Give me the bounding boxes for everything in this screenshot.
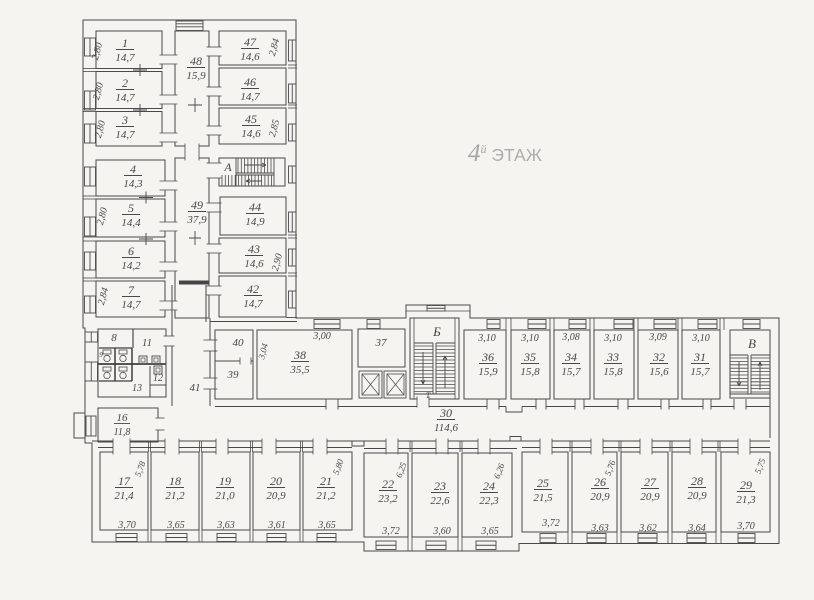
svg-text:41: 41 (190, 382, 201, 394)
svg-text:3,72: 3,72 (381, 526, 400, 537)
svg-text:21,3: 21,3 (736, 494, 756, 506)
svg-text:3,10: 3,10 (477, 333, 496, 344)
svg-text:3,65: 3,65 (166, 520, 185, 531)
svg-text:3,63: 3,63 (216, 520, 235, 531)
svg-text:3,62: 3,62 (638, 523, 657, 534)
svg-text:36: 36 (481, 350, 494, 364)
svg-text:4й ЭТАЖ: 4й ЭТАЖ (468, 140, 542, 167)
svg-text:14,6: 14,6 (244, 258, 264, 270)
svg-text:14,6: 14,6 (240, 51, 260, 63)
svg-text:40: 40 (233, 337, 245, 349)
svg-text:3,08: 3,08 (561, 332, 580, 343)
svg-text:39: 39 (227, 369, 240, 381)
svg-text:15,6: 15,6 (649, 366, 669, 378)
svg-text:28: 28 (691, 474, 703, 488)
svg-text:20: 20 (270, 474, 282, 488)
svg-text:16: 16 (117, 412, 129, 424)
svg-text:43: 43 (248, 242, 260, 256)
svg-text:9: 9 (99, 351, 103, 359)
svg-text:18: 18 (169, 474, 181, 488)
svg-text:14,7: 14,7 (115, 92, 135, 104)
svg-text:37,9: 37,9 (186, 214, 207, 226)
svg-text:3,09: 3,09 (648, 332, 667, 343)
svg-text:21,0: 21,0 (215, 490, 235, 502)
svg-text:29: 29 (740, 478, 752, 492)
svg-text:21,4: 21,4 (114, 490, 134, 502)
svg-text:А: А (223, 160, 232, 174)
svg-text:22,6: 22,6 (430, 495, 450, 507)
svg-text:15,8: 15,8 (520, 366, 540, 378)
svg-text:3,72: 3,72 (541, 518, 560, 529)
svg-text:3,65: 3,65 (317, 520, 336, 531)
svg-text:48: 48 (190, 54, 202, 68)
svg-text:45: 45 (245, 112, 257, 126)
svg-text:3,60: 3,60 (432, 526, 451, 537)
svg-text:38: 38 (293, 348, 306, 362)
svg-text:3,61: 3,61 (267, 520, 286, 531)
svg-text:34: 34 (564, 350, 577, 364)
svg-text:6: 6 (128, 244, 134, 258)
svg-text:21,2: 21,2 (316, 490, 336, 502)
svg-text:3,70: 3,70 (117, 520, 136, 531)
svg-text:В: В (748, 336, 756, 351)
svg-text:11: 11 (142, 337, 152, 349)
svg-text:5: 5 (128, 201, 134, 215)
svg-text:8: 8 (111, 332, 117, 344)
svg-text:15,9: 15,9 (478, 366, 498, 378)
svg-text:14,6: 14,6 (241, 128, 261, 140)
svg-text:3,10: 3,10 (520, 333, 539, 344)
svg-text:114,6: 114,6 (434, 422, 458, 434)
svg-text:20,9: 20,9 (590, 491, 610, 503)
svg-text:3,00: 3,00 (312, 331, 331, 342)
svg-text:44: 44 (249, 200, 261, 214)
svg-text:14,9: 14,9 (245, 216, 265, 228)
svg-text:3,10: 3,10 (603, 333, 622, 344)
svg-text:30: 30 (439, 406, 452, 420)
svg-text:1: 1 (122, 36, 128, 50)
svg-text:4: 4 (130, 162, 136, 176)
svg-text:31: 31 (693, 350, 706, 364)
svg-text:3,63: 3,63 (590, 523, 609, 534)
svg-text:37: 37 (375, 337, 388, 349)
svg-text:21,2: 21,2 (165, 490, 185, 502)
svg-text:11,8: 11,8 (114, 427, 131, 438)
svg-text:12: 12 (153, 373, 163, 384)
svg-text:49: 49 (191, 198, 203, 212)
svg-text:2: 2 (122, 76, 128, 90)
svg-text:14,7: 14,7 (240, 91, 260, 103)
svg-text:23: 23 (434, 479, 446, 493)
svg-text:25: 25 (537, 476, 549, 490)
svg-text:17: 17 (118, 474, 131, 488)
svg-text:22: 22 (382, 477, 394, 491)
svg-text:Б: Б (432, 324, 441, 339)
svg-text:3: 3 (121, 113, 128, 127)
svg-text:14,4: 14,4 (121, 217, 141, 229)
svg-text:15,7: 15,7 (561, 366, 581, 378)
svg-text:20,9: 20,9 (266, 490, 286, 502)
svg-text:3,65: 3,65 (480, 526, 499, 537)
svg-text:14,7: 14,7 (115, 52, 135, 64)
svg-text:15,9: 15,9 (186, 70, 206, 82)
svg-text:3,10: 3,10 (691, 333, 710, 344)
svg-text:35,5: 35,5 (289, 364, 310, 376)
svg-text:20,9: 20,9 (687, 490, 707, 502)
svg-text:42: 42 (247, 282, 259, 296)
svg-text:14,7: 14,7 (115, 129, 135, 141)
svg-text:7: 7 (128, 283, 135, 297)
svg-text:26: 26 (594, 475, 606, 489)
svg-text:15,8: 15,8 (603, 366, 623, 378)
svg-text:24: 24 (483, 479, 495, 493)
svg-text:22,3: 22,3 (479, 495, 499, 507)
svg-text:15,7: 15,7 (690, 366, 710, 378)
svg-text:14,2: 14,2 (121, 260, 141, 272)
svg-text:32: 32 (652, 350, 665, 364)
svg-text:21: 21 (320, 474, 332, 488)
svg-text:20,9: 20,9 (640, 491, 660, 503)
svg-text:14,7: 14,7 (121, 299, 141, 311)
svg-text:46: 46 (244, 75, 256, 89)
svg-text:21,5: 21,5 (533, 492, 553, 504)
svg-text:47: 47 (244, 35, 257, 49)
svg-text:35: 35 (523, 350, 536, 364)
svg-text:13: 13 (132, 383, 142, 394)
svg-text:14,7: 14,7 (243, 298, 263, 310)
svg-text:19: 19 (219, 474, 231, 488)
svg-text:3,70: 3,70 (736, 521, 755, 532)
svg-text:3,64: 3,64 (687, 523, 706, 534)
svg-text:14,3: 14,3 (123, 178, 143, 190)
svg-text:23,2: 23,2 (378, 493, 398, 505)
svg-text:27: 27 (644, 475, 657, 489)
svg-text:33: 33 (606, 350, 619, 364)
